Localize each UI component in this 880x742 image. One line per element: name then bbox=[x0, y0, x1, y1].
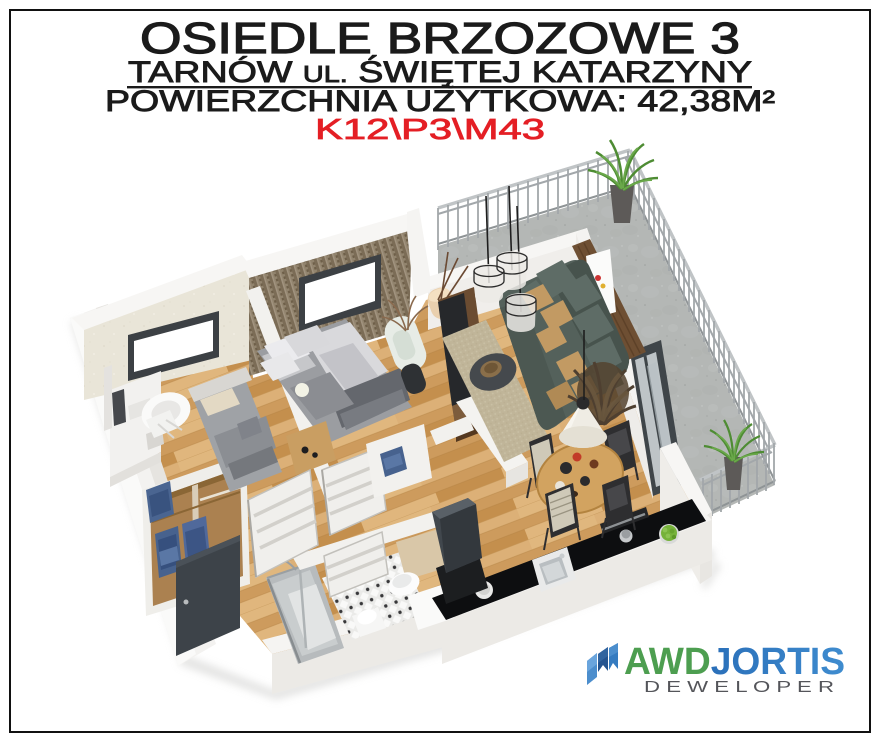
svg-text:K12\P3\M43: K12\P3\M43 bbox=[315, 114, 545, 146]
svg-text:TARNÓW UL. ŚWIĘTEJ KATARZYNY: TARNÓW UL. ŚWIĘTEJ KATARZYNY bbox=[128, 55, 752, 89]
svg-text:AWDJORTIS: AWDJORTIS bbox=[624, 641, 845, 683]
svg-text:D E W E L O P E R: D E W E L O P E R bbox=[644, 679, 834, 696]
